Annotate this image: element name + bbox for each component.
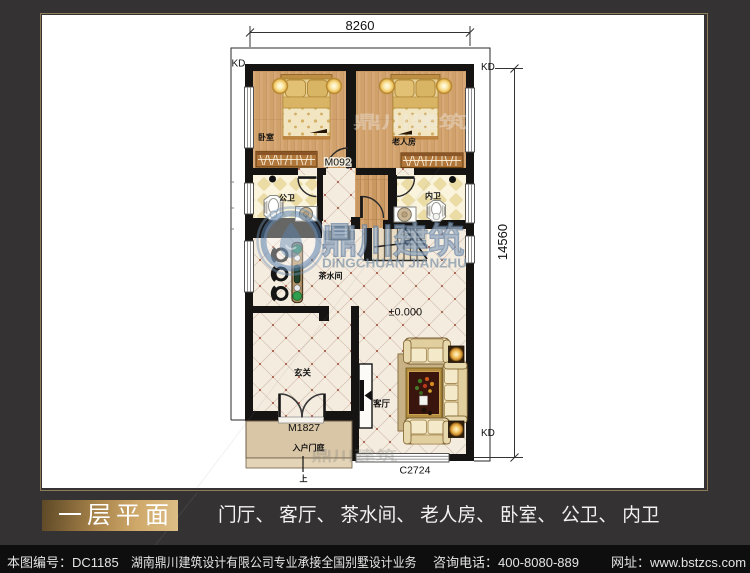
svg-text:M1827: M1827 bbox=[288, 422, 320, 434]
svg-text:鼎川建筑: 鼎川建筑 bbox=[322, 222, 464, 261]
svg-text:±0.000: ±0.000 bbox=[389, 307, 423, 319]
svg-text:上: 上 bbox=[300, 474, 308, 484]
svg-text:14560: 14560 bbox=[495, 224, 510, 260]
svg-text:C2724: C2724 bbox=[400, 465, 431, 477]
svg-text:DINGCHUAN JIANZHU: DINGCHUAN JIANZHU bbox=[322, 257, 467, 271]
svg-text:鼎川建筑: 鼎川建筑 bbox=[353, 112, 467, 132]
svg-text:玄关: 玄关 bbox=[294, 368, 312, 378]
svg-text:公卫: 公卫 bbox=[279, 194, 295, 203]
svg-text:鼎川建筑: 鼎川建筑 bbox=[311, 448, 397, 464]
svg-text:KD: KD bbox=[481, 428, 495, 439]
svg-text:老人房: 老人房 bbox=[391, 137, 416, 147]
svg-text:客厅: 客厅 bbox=[372, 399, 391, 409]
svg-text:8260: 8260 bbox=[346, 18, 375, 33]
svg-text:KD: KD bbox=[481, 62, 495, 73]
svg-text:M092: M092 bbox=[325, 157, 351, 169]
svg-text:内卫: 内卫 bbox=[425, 191, 441, 201]
svg-text:KD: KD bbox=[232, 59, 246, 70]
svg-text:卧室: 卧室 bbox=[258, 132, 274, 142]
svg-text:茶水间: 茶水间 bbox=[318, 271, 343, 281]
